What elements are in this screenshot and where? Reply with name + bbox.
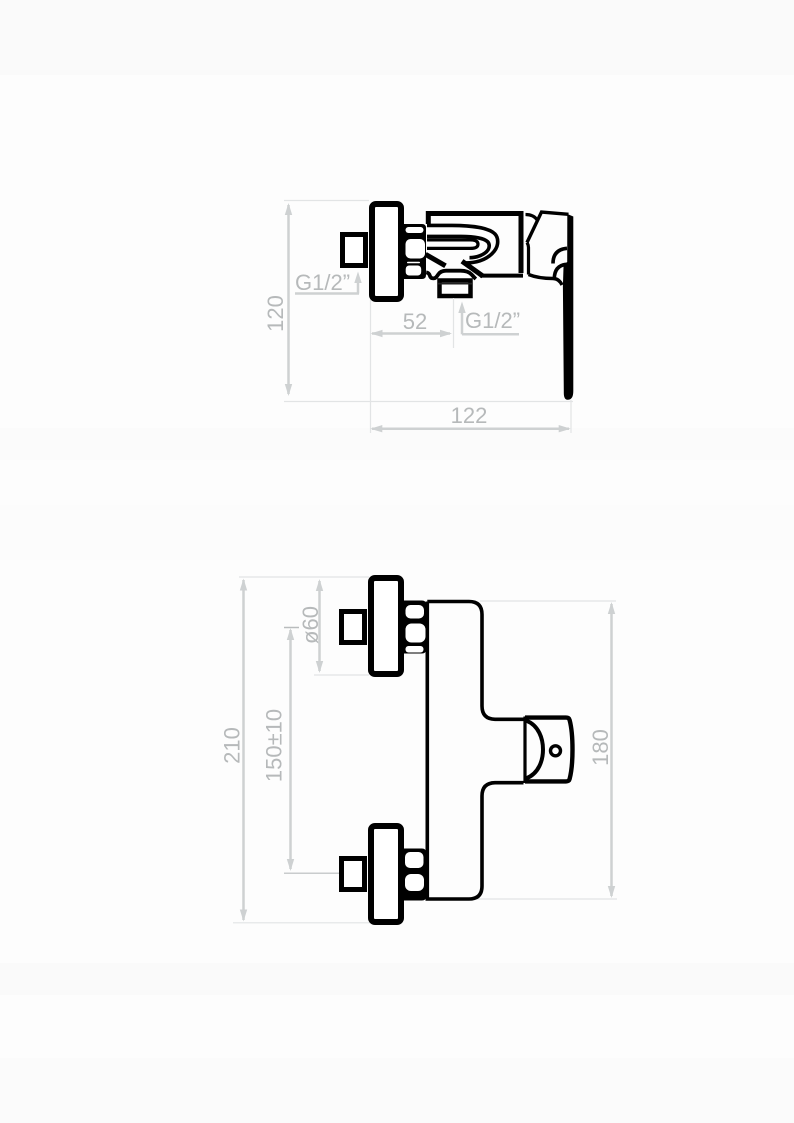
svg-text:52: 52 bbox=[403, 309, 427, 334]
svg-text:120: 120 bbox=[263, 295, 288, 332]
svg-text:ø60: ø60 bbox=[298, 606, 323, 644]
svg-text:G1/2”: G1/2” bbox=[465, 308, 520, 333]
svg-text:G1/2”: G1/2” bbox=[295, 270, 350, 295]
svg-text:122: 122 bbox=[451, 403, 488, 428]
svg-text:150±10: 150±10 bbox=[262, 709, 287, 782]
svg-text:210: 210 bbox=[220, 727, 245, 764]
svg-text:180: 180 bbox=[588, 729, 613, 766]
